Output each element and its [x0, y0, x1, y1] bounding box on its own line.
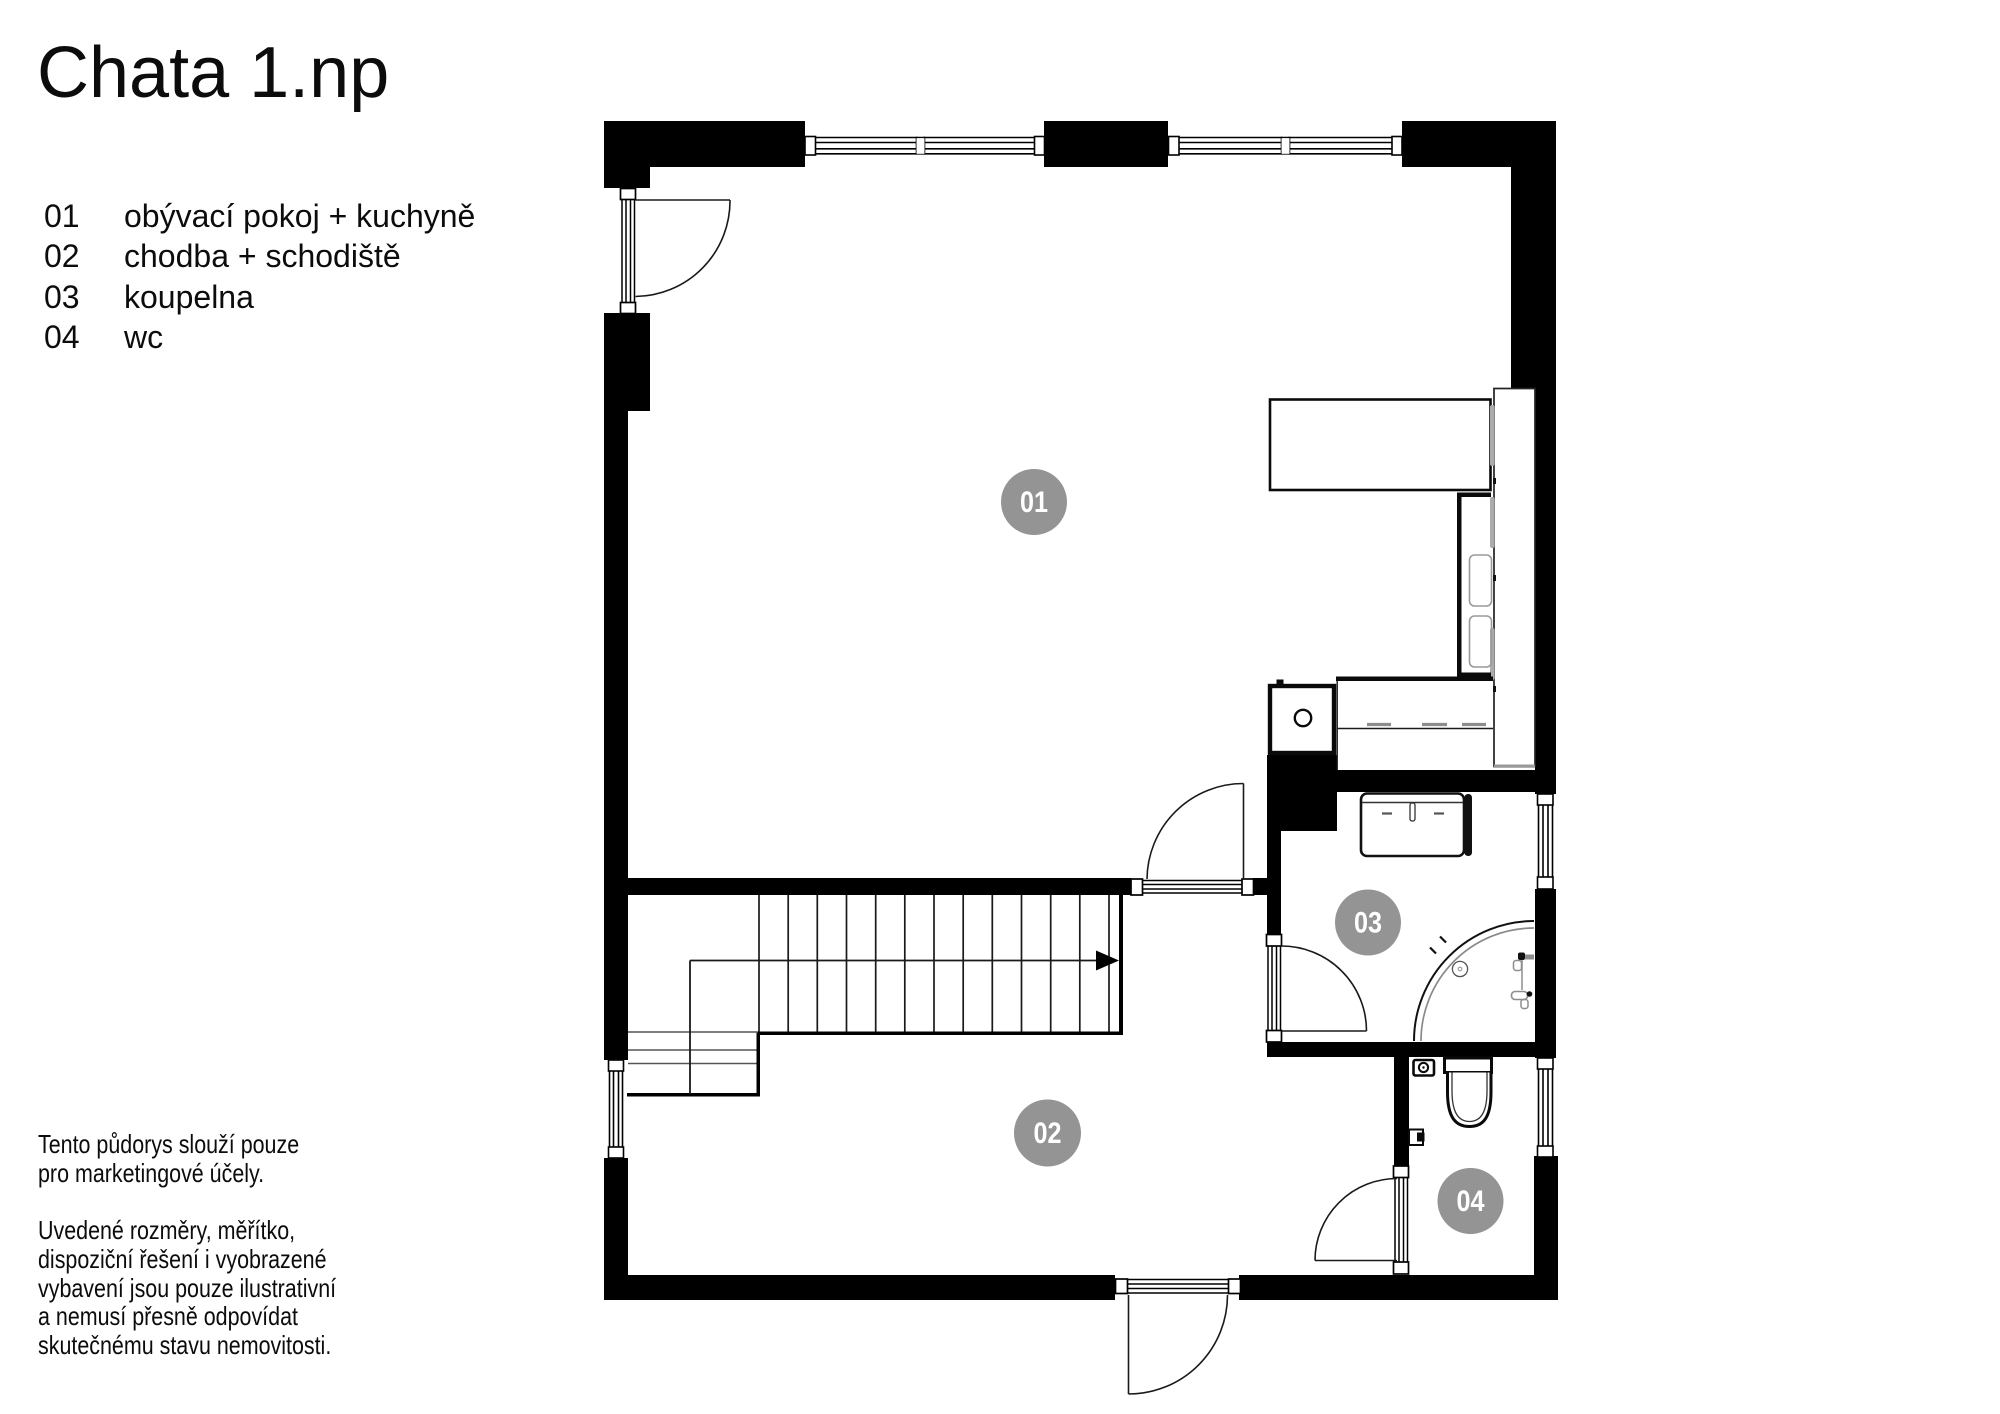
svg-text:03: 03 [1354, 907, 1382, 940]
svg-text:01: 01 [1020, 486, 1048, 519]
svg-text:02: 02 [1034, 1117, 1062, 1150]
svg-text:04: 04 [1457, 1185, 1485, 1218]
